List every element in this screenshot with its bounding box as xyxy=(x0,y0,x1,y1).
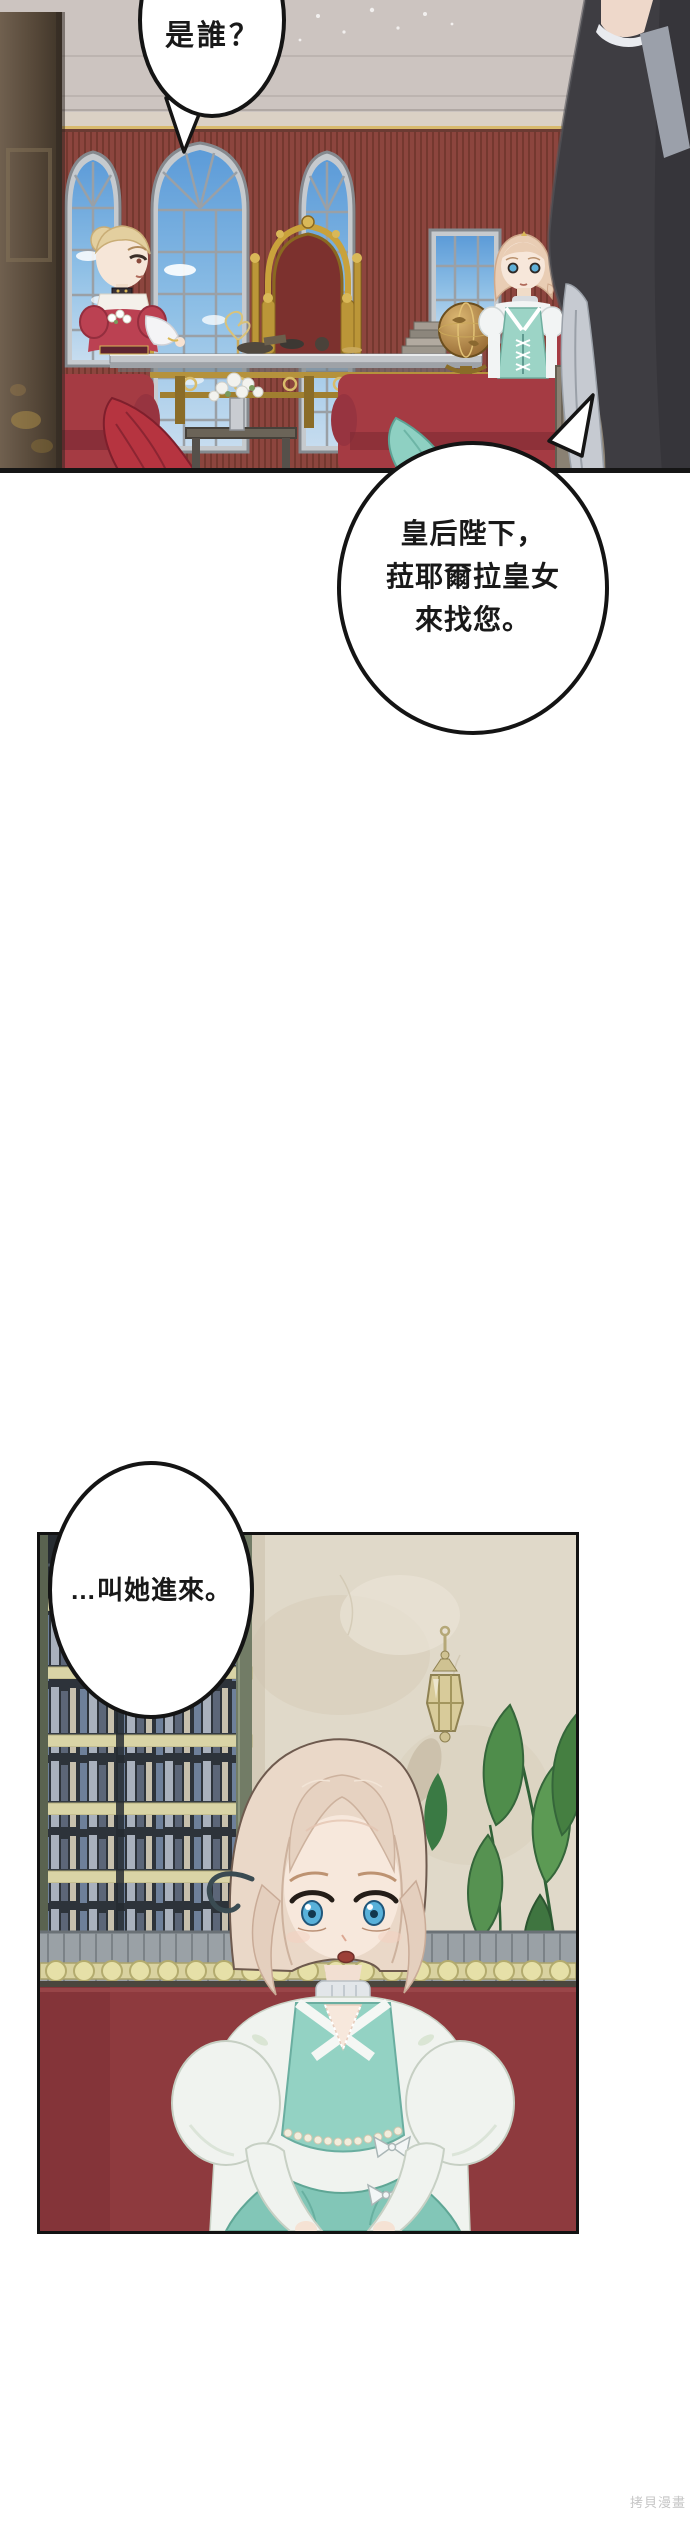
bubble-middle-text: 皇后陛下， 菈耶爾拉皇女 來找您。 xyxy=(337,512,609,641)
couch-gold-rail xyxy=(40,1961,576,1989)
bottom-panel xyxy=(37,1532,579,2234)
bubble-middle-line1: 皇后陛下， xyxy=(337,512,609,555)
bubble-middle-line2: 菈耶爾拉皇女 xyxy=(337,555,609,598)
bubble-middle-line3: 來找您。 xyxy=(337,598,609,641)
sitting-room-scene xyxy=(40,1535,576,2231)
bubble-bottom-text: …叫她進來。 xyxy=(46,1570,256,1607)
bubble-top-text: 是誰？ xyxy=(140,12,286,54)
site-watermark: 拷貝漫畫 xyxy=(606,2492,686,2511)
scene-divider xyxy=(0,468,690,473)
foreground-pillar xyxy=(0,12,65,473)
mouth xyxy=(338,1952,354,1963)
comic-page: 是誰？ 皇后陛下， 菈耶爾拉皇女 來找您。 …叫她進來。 拷貝漫畫 xyxy=(0,0,690,2521)
throne-room-scene xyxy=(0,0,690,473)
shelf-rows xyxy=(40,1599,252,1931)
